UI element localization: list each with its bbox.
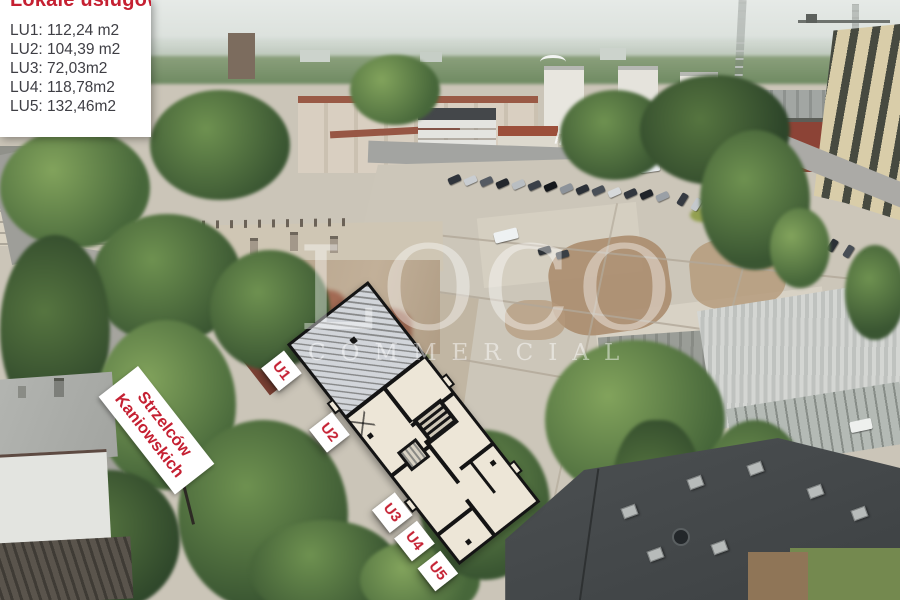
satellite-dish <box>672 528 690 546</box>
legend-item-lu5: LU5: 132,46m2 <box>10 97 151 116</box>
tree-canopy <box>845 245 900 340</box>
roof-chimney <box>18 386 26 398</box>
legend-list: LU1: 112,24 m2 LU2: 104,39 m2 LU3: 72,03… <box>10 21 151 116</box>
aerial-photo: LOCO COMMERCIAL U1 U2 U3 U4 <box>0 0 900 600</box>
plan-brace <box>350 410 376 436</box>
legend-item-lu3: LU3: 72,03m2 <box>10 59 151 78</box>
tree-canopy <box>350 55 440 125</box>
legend-item-lu2: LU2: 104,39 m2 <box>10 40 151 59</box>
tower-crane-counterweight <box>806 14 817 23</box>
legend-item-lu1: LU1: 112,24 m2 <box>10 21 151 40</box>
plan-wall <box>438 505 476 536</box>
brick-tower-distant <box>228 33 255 79</box>
tree-canopy <box>150 90 290 200</box>
distant-building <box>300 50 330 62</box>
ruin-chimney <box>290 232 298 251</box>
ribbed-roof <box>0 536 134 600</box>
ruin-chimney <box>330 236 338 253</box>
plan-wall <box>424 439 460 484</box>
legend-card: Lokale usługowe: LU1: 112,24 m2 LU2: 104… <box>0 0 151 137</box>
tree-canopy <box>770 208 830 288</box>
stair-core <box>412 398 459 444</box>
legend-title: Lokale usługowe: <box>10 0 151 12</box>
roof-chimney <box>54 378 64 397</box>
distant-building <box>420 52 442 62</box>
stair-treads <box>418 404 454 439</box>
plan-column <box>465 538 472 545</box>
plan-column <box>367 432 374 439</box>
plan-wall <box>384 388 413 424</box>
plan-wall <box>465 498 497 537</box>
plan-column <box>490 460 497 467</box>
distant-building <box>600 48 626 60</box>
courtyard <box>748 552 808 600</box>
legend-item-lu4: LU4: 118,78m2 <box>10 78 151 97</box>
